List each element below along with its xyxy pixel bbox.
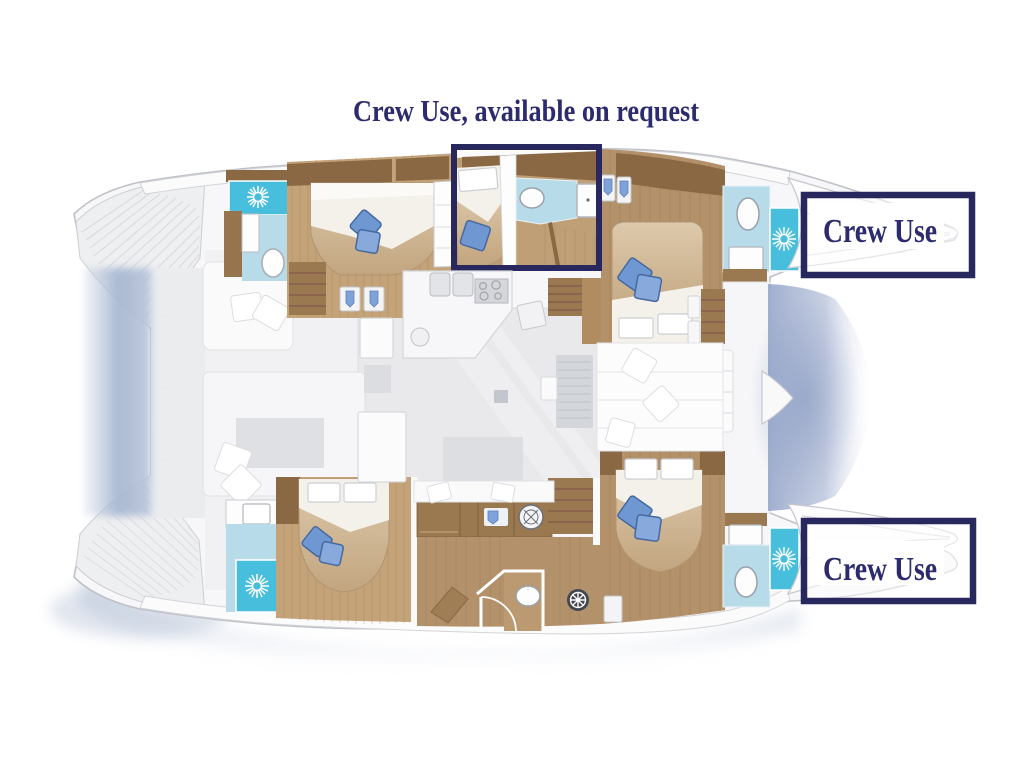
svg-text:Crew Use: Crew Use (823, 213, 937, 250)
svg-text:Crew Use: Crew Use (823, 551, 937, 588)
svg-text:Crew Use, available on request: Crew Use, available on request (353, 93, 700, 128)
